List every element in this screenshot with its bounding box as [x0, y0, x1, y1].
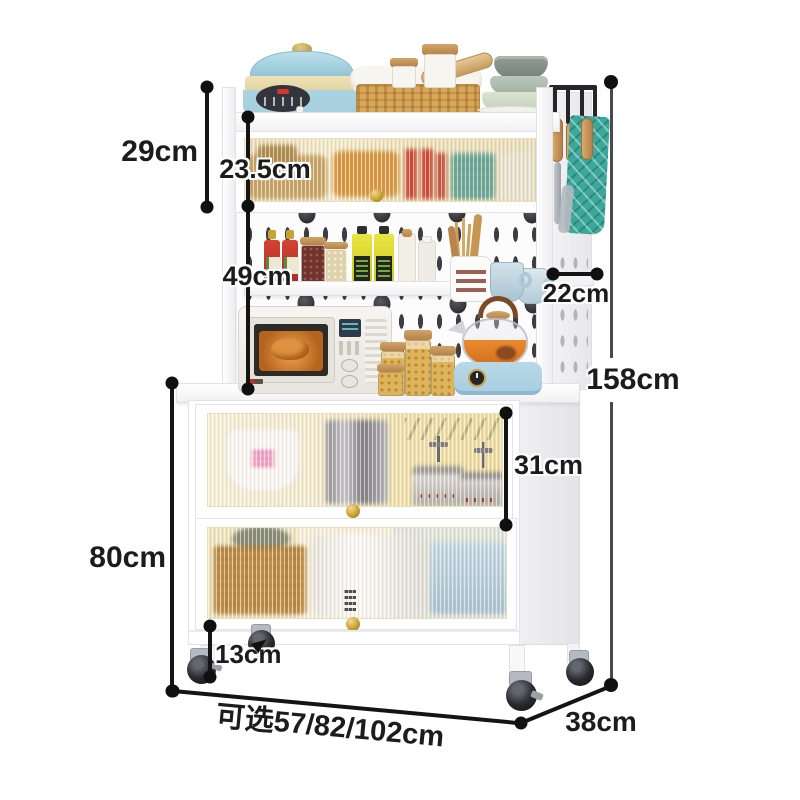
jar-lid	[324, 242, 348, 249]
microwave-window	[254, 324, 328, 376]
warmer-knob-tick	[476, 373, 478, 378]
chopsticks	[462, 218, 465, 260]
blurred-pale-dish	[499, 153, 533, 199]
oil-label	[354, 256, 370, 284]
pink-label	[252, 451, 274, 467]
upper-door-knob	[346, 504, 360, 518]
toaster-lever	[474, 448, 493, 453]
tea-leaves	[496, 346, 516, 360]
blurred-vent-slats	[404, 418, 500, 440]
tea-warmer	[454, 362, 542, 395]
dimension-endpoint-dot	[242, 383, 255, 396]
dimension-label: 49cm	[177, 262, 337, 290]
snack-jar	[405, 340, 431, 396]
snack-jar	[431, 355, 455, 396]
oil-label-text-lines	[356, 260, 368, 278]
top-cabinet-knob	[370, 189, 383, 202]
teapot-body	[462, 318, 528, 368]
microwave-buttons	[339, 341, 361, 355]
utensil-holder-slots	[456, 265, 486, 297]
oil-label-text-lines	[378, 260, 390, 278]
dimension-endpoint-dot	[242, 111, 255, 124]
blurred-dried-plants	[232, 527, 290, 552]
dimension-endpoint-dot	[204, 620, 217, 633]
lower-cabinet-glass	[207, 527, 507, 619]
snack-jar-lid	[377, 364, 404, 372]
blurred-toaster	[412, 466, 464, 506]
bottom-rail-seam	[189, 630, 519, 632]
oil-cap	[357, 226, 367, 234]
blurred-blue-bin	[430, 542, 507, 614]
hutch-top-board	[222, 112, 560, 132]
dimension-endpoint-dot	[604, 75, 618, 89]
hook-icon	[593, 86, 597, 118]
blurred-rice-container	[226, 428, 300, 492]
white-bottle	[398, 233, 416, 287]
bottle-cap	[268, 230, 276, 239]
oil-label	[376, 256, 392, 284]
dimension-line	[610, 82, 613, 358]
toaster-lever	[482, 442, 485, 468]
blurred-red-bottle	[421, 149, 433, 199]
white-bottle-cap	[402, 229, 412, 237]
snack-jar-lid	[380, 342, 406, 351]
upper-cabinet-door	[195, 404, 513, 520]
snack-jar-lid	[430, 346, 456, 355]
dimension-label: 22cm	[516, 280, 636, 307]
lower-door-knob	[346, 617, 360, 631]
dimension-endpoint-dot	[242, 200, 255, 213]
upper-cabinet-glass	[207, 413, 503, 507]
microwave-knob	[341, 375, 358, 388]
bottle-cap	[286, 230, 294, 239]
dimension-line	[610, 402, 613, 685]
pot-lid	[250, 51, 354, 79]
jar-lid	[300, 237, 326, 245]
white-bottle-cap	[422, 236, 432, 243]
roast-chicken	[271, 338, 309, 360]
canister-small	[392, 66, 416, 88]
dimension-endpoint-dot	[500, 407, 513, 420]
dimension-endpoint-dot	[204, 671, 217, 684]
toaster-dots	[466, 498, 498, 502]
dimension-label: 80cm	[66, 542, 166, 574]
blurred-wicker-basket	[214, 546, 306, 614]
dimension-label: 可选57/82/102cm	[204, 701, 456, 754]
blurred-teal-bowls	[451, 153, 495, 199]
microwave-knob	[341, 359, 358, 372]
dimension-line	[504, 413, 508, 525]
toaster-lever	[429, 442, 448, 447]
blurred-red-bottle	[436, 153, 446, 199]
toaster-lever	[437, 436, 440, 462]
warmer-knob	[468, 369, 486, 387]
toaster-dots	[420, 494, 456, 498]
hutch-right-post	[536, 87, 553, 390]
blurred-toaster	[460, 472, 503, 506]
oil-bottle	[352, 226, 372, 287]
utensil-holder	[450, 256, 492, 302]
dimension-line	[205, 87, 209, 207]
snack-jar-lid	[404, 330, 432, 340]
dimension-line	[208, 626, 212, 677]
oil-bottle	[374, 226, 394, 287]
blurred-steel-pot	[326, 420, 388, 504]
dimension-line	[246, 206, 250, 389]
pot-dial-icons	[264, 97, 302, 106]
blurred-white-bucket	[312, 534, 424, 618]
electric-pot	[243, 42, 363, 118]
microwave-screen	[339, 319, 361, 337]
dimension-endpoint-dot	[167, 685, 180, 698]
bowl-stack-top	[494, 56, 548, 78]
dimension-label: 38cm	[551, 707, 651, 736]
dimension-endpoint-dot	[166, 377, 179, 390]
oil-cap	[379, 226, 389, 234]
lower-side-panel	[518, 397, 580, 645]
dimension-label: 29cm	[98, 136, 198, 168]
hutch-left-post	[222, 87, 236, 390]
utensil-handle	[581, 118, 593, 160]
dimension-endpoint-dot	[201, 81, 214, 94]
dimension-endpoint-dot	[500, 519, 513, 532]
dimension-label: 31cm	[514, 451, 604, 479]
canister-large	[424, 54, 456, 88]
microwave-door	[247, 317, 335, 383]
product-dimension-image: 29cm 23.5cm 49cm 22cm 158cm 31cm 80cm	[0, 0, 800, 800]
dimension-label: 23.5cm	[185, 155, 345, 183]
dimension-label: 158cm	[563, 364, 703, 396]
small-logo-mark	[344, 590, 356, 612]
snack-jar	[378, 372, 403, 396]
lower-cabinet-door	[195, 518, 517, 630]
blurred-red-bottle	[405, 149, 417, 199]
caster-wheel	[566, 658, 594, 686]
pot-indicator	[277, 89, 289, 94]
dimension-endpoint-dot	[201, 201, 214, 214]
white-bottle	[418, 240, 436, 287]
screen-digits	[342, 323, 358, 333]
dimension-line	[170, 383, 174, 691]
microwave-oven	[238, 306, 392, 394]
